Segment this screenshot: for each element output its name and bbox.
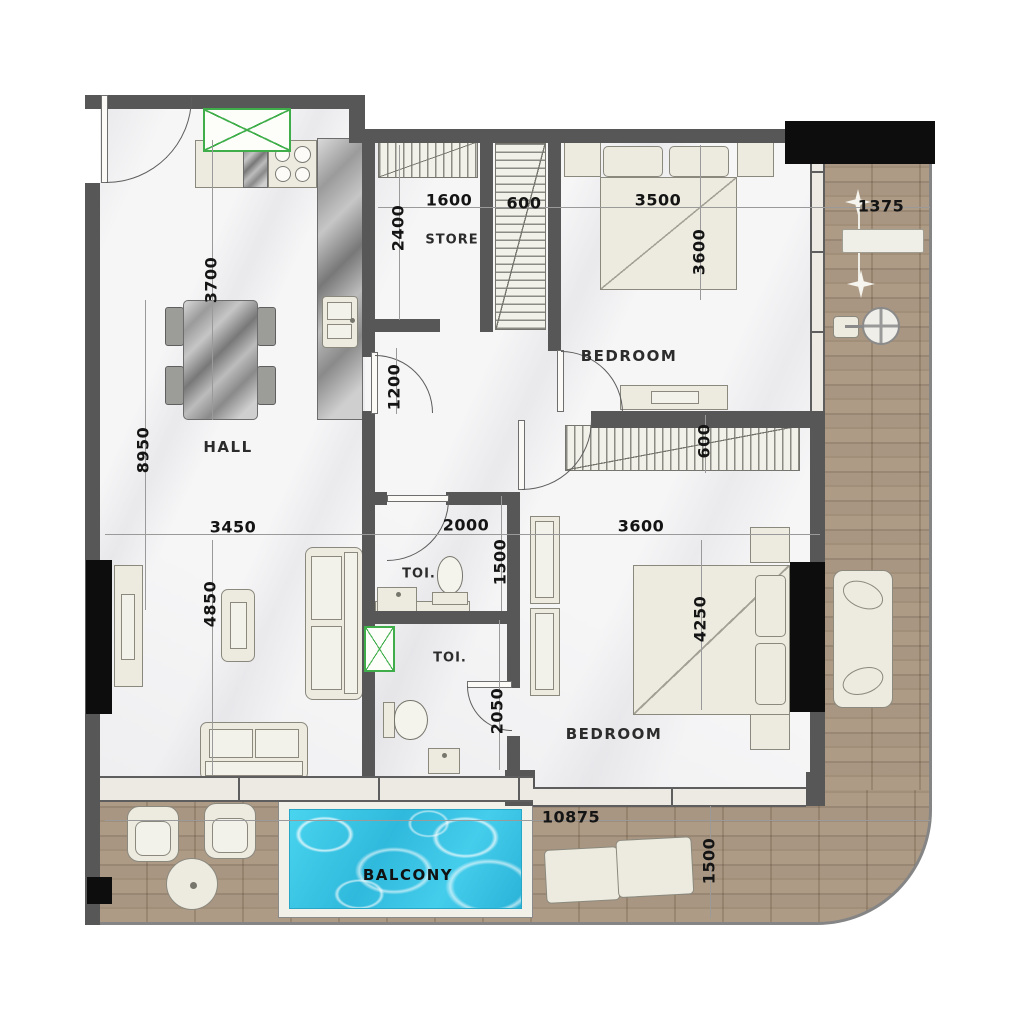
sofa-main (305, 547, 363, 700)
tv-wall-panel (86, 560, 112, 714)
table-center (190, 882, 197, 889)
sofa-seat (311, 556, 342, 620)
dining-table (183, 300, 258, 420)
balcony-round-table (166, 858, 218, 910)
dining-chair (165, 366, 184, 405)
pillow (755, 575, 786, 637)
toilet-icon (394, 700, 428, 740)
glazing-bedroom2 (790, 562, 825, 712)
dim-bedroom2-depth: 4250 (691, 596, 710, 643)
dresser (620, 385, 728, 410)
sofa-seat (255, 729, 299, 758)
nightstand (564, 141, 601, 177)
dim-wardrobe-bedroom2: 600 (695, 424, 714, 459)
floor-plan: 3700 2400 1600 600 3500 1375 3600 8950 1… (0, 0, 1024, 1024)
nightstand (750, 527, 790, 563)
store-wardrobe (378, 141, 478, 178)
dim-hall-opening: 1200 (385, 364, 404, 411)
dining-chair (165, 307, 184, 346)
dim-bedroom1-width: 3500 (635, 191, 682, 210)
faucet-icon (350, 318, 355, 323)
dim-toilet1-depth: 1500 (491, 539, 510, 586)
dim-hall-length: 8950 (134, 427, 153, 474)
wardrobe-cabinet (530, 608, 560, 696)
dimension-line (700, 145, 701, 300)
room-label-balcony: BALCONY (363, 866, 453, 884)
cabinet-detail (535, 613, 554, 690)
wall-toilets-right-b (507, 624, 520, 688)
faucet-icon (442, 753, 447, 758)
wall-bedroom1-left (548, 129, 561, 351)
sun-lounger (543, 836, 696, 906)
dim-total-width: 10875 (542, 808, 600, 827)
wall-bedroom2-right-a (810, 411, 825, 562)
wardrobe-cabinet (530, 516, 560, 604)
burner-icon (294, 146, 311, 163)
sofa-back (205, 761, 303, 776)
wall-left-upper (85, 95, 100, 105)
coffee-table (221, 589, 255, 662)
window-bedroom2-terrace (533, 787, 806, 807)
dimension-line (212, 540, 213, 775)
armchair-cushion (212, 818, 248, 853)
sink-basin (327, 302, 352, 320)
pillow (603, 146, 663, 177)
glazing-bottom-left (87, 877, 112, 904)
room-label-store: STORE (425, 233, 478, 248)
shaft-cross-icon (203, 108, 291, 152)
room-label-hall: HALL (203, 438, 252, 456)
exercise-bike-wheel (862, 307, 900, 345)
sofa-back (344, 552, 358, 694)
room-label-bedroom1: BEDROOM (581, 347, 678, 365)
wall-toilet1-top-a (362, 492, 387, 505)
nightstand (737, 141, 774, 177)
armchair-cushion (135, 821, 171, 856)
sofa-seat (311, 626, 342, 690)
window-hall-balcony (100, 776, 533, 802)
pillow (669, 146, 729, 177)
terrace-bench (842, 229, 924, 253)
wall-corridor-left-b (362, 411, 375, 494)
glazing-top-right (785, 121, 935, 164)
burner-icon (295, 167, 310, 182)
dim-living-width: 3450 (210, 518, 257, 537)
dim-bedroom2-width: 3600 (618, 517, 665, 536)
washbasin (428, 748, 460, 774)
tv-console (114, 565, 143, 687)
kitchen-sink (322, 296, 358, 348)
toilet-icon (437, 556, 463, 594)
washbasin (377, 587, 417, 613)
wardrobe-column (495, 143, 546, 330)
shaft-cross-icon (364, 626, 395, 672)
balcony-armchair (127, 806, 179, 862)
dim-kitchen-depth: 3700 (202, 257, 221, 304)
dimension-line (105, 820, 930, 821)
wall-store-right (480, 129, 493, 332)
dim-toilet2-depth: 2050 (488, 688, 507, 735)
sofa-seat (209, 729, 253, 758)
lounger-seat (544, 846, 621, 904)
toilet-tank (432, 592, 468, 605)
coffee-table-detail (230, 602, 247, 649)
sofa-bottom (200, 722, 308, 780)
balcony-armchair (204, 803, 256, 859)
wall-bedroom2-right-b (810, 710, 825, 777)
wall-toilets-mid (362, 611, 520, 624)
dining-chair (257, 366, 276, 405)
sink-basin (327, 324, 352, 339)
pool-water (289, 809, 522, 909)
bedroom2-wardrobe (565, 425, 800, 471)
room-label-toilet1: TOI. (402, 567, 436, 582)
dim-corridor-width: 2000 (443, 516, 490, 535)
wall-store-left (362, 129, 375, 332)
console-detail (121, 594, 135, 660)
room-label-toilet2: TOI. (433, 651, 467, 666)
faucet-icon (396, 592, 401, 597)
kitchen-counter (317, 138, 363, 420)
dining-chair (257, 307, 276, 346)
dim-bedroom1-depth: 3600 (690, 229, 709, 276)
pillow (755, 643, 786, 705)
dresser-detail (651, 391, 699, 404)
dim-terrace-right: 1375 (858, 197, 905, 216)
nightstand (750, 714, 790, 750)
dim-terrace-bottom: 1500 (700, 838, 719, 885)
dim-store-depth: 2400 (389, 205, 408, 252)
lounger-seat (615, 836, 694, 898)
wall-top-main (349, 129, 790, 143)
burner-icon (275, 166, 291, 182)
window-bedroom1 (810, 163, 825, 411)
wall-bottom-stub-right (806, 772, 825, 806)
room-label-bedroom2: BEDROOM (566, 725, 663, 743)
dim-wardrobe-top: 600 (507, 194, 542, 213)
cabinet-detail (535, 521, 554, 598)
dim-living-depth: 4850 (201, 581, 220, 628)
dim-store-width: 1600 (426, 191, 473, 210)
